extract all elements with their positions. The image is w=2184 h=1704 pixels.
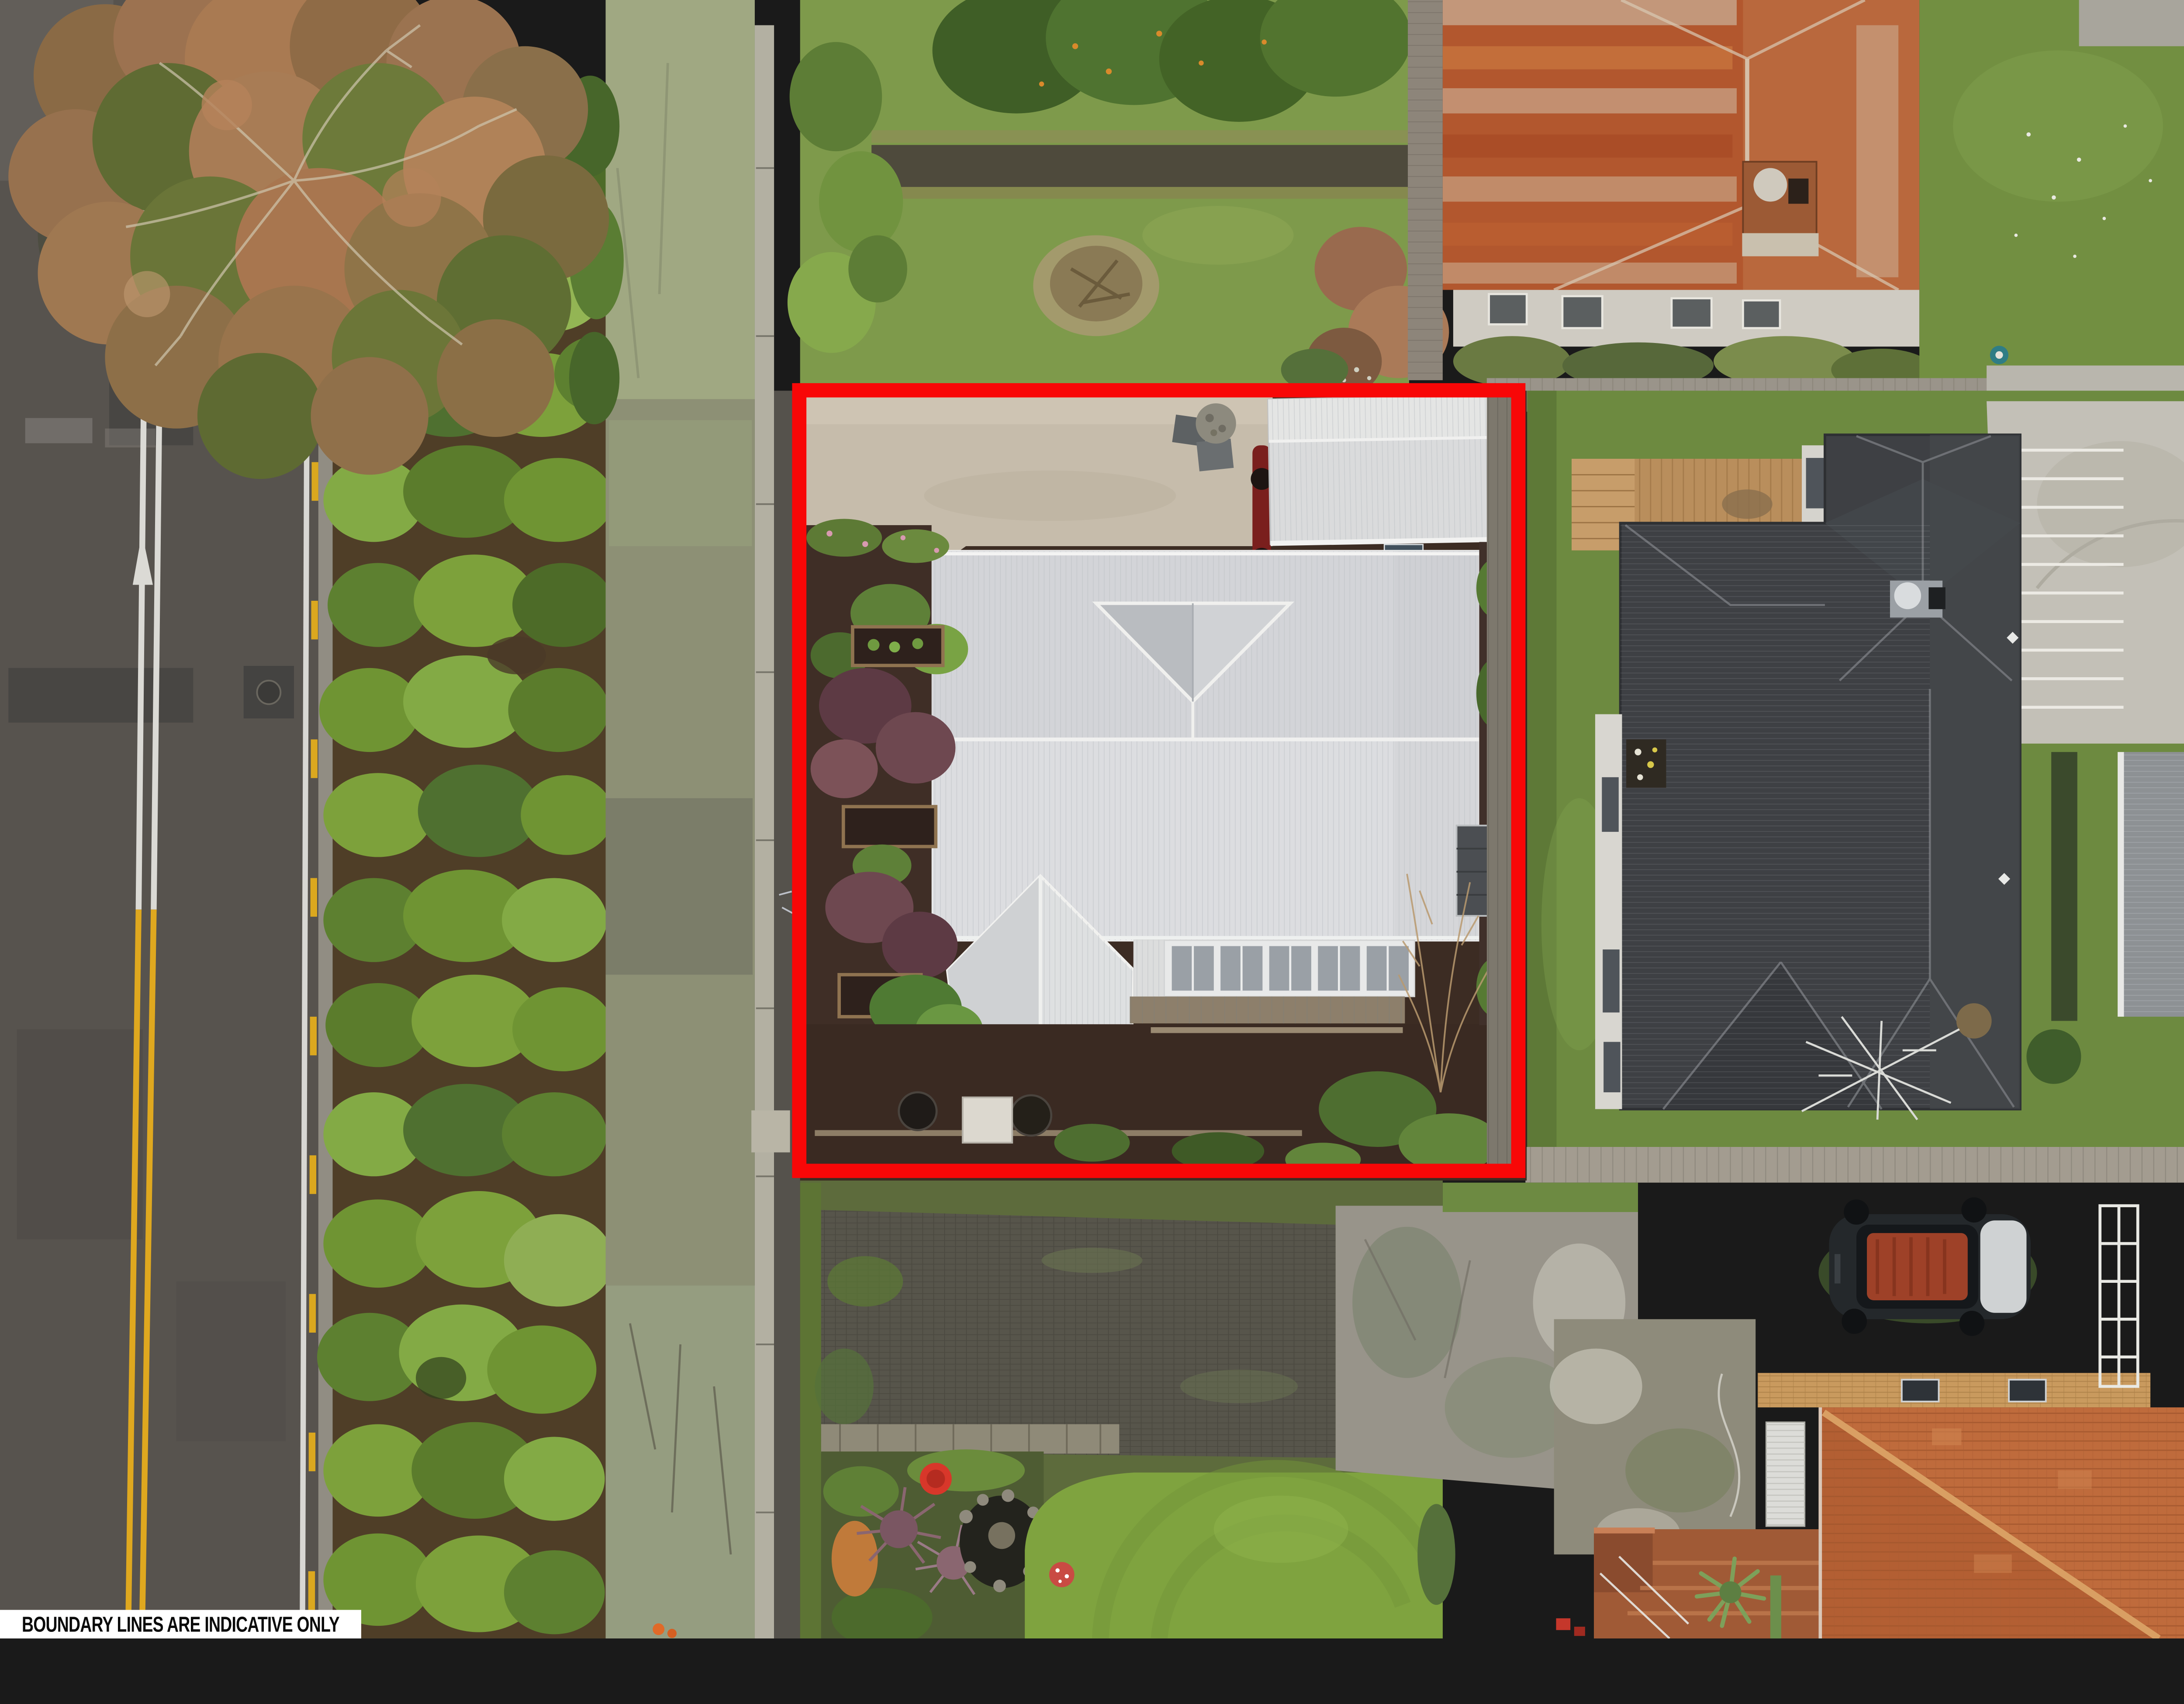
white-utility-box: [963, 1098, 1012, 1143]
round-shrub: [2026, 1029, 2081, 1084]
front-lawn: [1025, 1468, 1455, 1638]
stone-pot: [1196, 403, 1236, 443]
neighbor-chimney: [1890, 581, 1946, 618]
round-pot: [1011, 1095, 1051, 1136]
bottom-area: [800, 1176, 1647, 1638]
skylight: [1902, 1380, 1939, 1402]
white-roller-panel: [1766, 1422, 1804, 1526]
subject-garage: [1268, 395, 1491, 546]
manhole-cover: [257, 681, 280, 704]
car-glass-roof: [1867, 1233, 1968, 1300]
rear-neighbor-backyard: [788, 0, 1449, 395]
neighbor-right-property: [1527, 391, 2184, 1181]
white-gate-frame: [2100, 1206, 2138, 1386]
rusty-roof-house: [1443, 0, 1932, 391]
subject-property: [800, 387, 1527, 1181]
subject-house-roof: [932, 551, 1479, 1083]
stone-retaining-wall: [821, 1424, 1120, 1454]
backyard-concrete-path: [871, 145, 1409, 187]
disclaimer-banner: BOUNDARY LINES ARE INDICATIVE ONLY: [0, 1610, 361, 1638]
tile-roof-house: [1550, 1319, 2184, 1638]
planter-strip: [2051, 752, 2077, 1021]
bottom-garden-bed: [800, 1024, 1500, 1176]
brick-steps: [1594, 1527, 1818, 1638]
boundary-disclaimer-text: BOUNDARY LINES ARE INDICATIVE ONLY: [22, 1613, 339, 1637]
parked-car: [1818, 1197, 2037, 1336]
car-white-hatch: [1980, 1220, 2027, 1313]
path-curb: [755, 25, 774, 1638]
round-pot: [899, 1092, 937, 1130]
front-garden: [821, 1449, 1048, 1638]
aerial-photo-canvas: BOUNDARY LINES ARE INDICATIVE ONLY: [0, 0, 2184, 1638]
cobblestone-path: [815, 1210, 1335, 1458]
neighbor-house-wall: [1595, 714, 1622, 1109]
skylight: [2009, 1380, 2046, 1402]
neighbor-house-roof: [1621, 435, 2020, 1109]
old-house-deck-strip: [1408, 0, 1443, 380]
timber-deck-strip: [1130, 997, 1405, 1024]
chimney: [1742, 162, 1818, 256]
side-boardwalk: [1525, 1147, 2184, 1183]
window-row: [1134, 940, 1414, 997]
brick-parapet: [1758, 1373, 2150, 1407]
aerial-photo: BOUNDARY LINES ARE INDICATIVE ONLY: [0, 0, 2184, 1638]
red-equipment: [1556, 1618, 1585, 1636]
terracotta-roof: [1818, 1407, 2184, 1638]
flower-bed: [1626, 739, 1666, 788]
polka-dot-ball: [1049, 1562, 1075, 1587]
neighbor-carport: [2118, 752, 2184, 1017]
raised-planter: [843, 807, 936, 846]
